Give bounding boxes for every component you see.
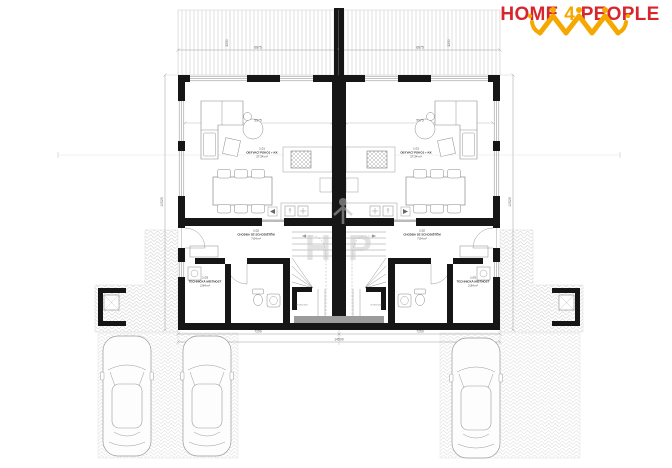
dim-top-right: 6875 [416, 46, 424, 50]
dim-side-right: 10525 [508, 197, 512, 207]
brand-logo: HOME 4 PEOPLE [496, 4, 664, 24]
living-left-area: 27,34 m² [256, 155, 267, 159]
watermark-letter-right: P [348, 227, 372, 268]
dim-living-left: 5975 [254, 119, 262, 123]
dim-terrace-left: 3250 [225, 39, 229, 47]
tech-left-area: 2,94 m² [200, 284, 210, 288]
dim-bottom-left: 7250 [254, 330, 262, 334]
watermark-letter-left: H [305, 227, 331, 268]
dim-bottom-right: 7250 [416, 330, 424, 334]
dim-side-left: 10525 [160, 197, 164, 207]
car-right [450, 338, 503, 458]
living-right-area: 27,34 m² [410, 155, 421, 159]
stair-note-right: 9×184×250 [370, 304, 382, 307]
car-left-1 [101, 336, 154, 456]
dim-top-left: 6875 [254, 46, 262, 50]
hall-right-area: 7,04 m² [417, 237, 427, 241]
stair-note-left: 9×184×250 [296, 304, 308, 307]
dim-bottom-total: 14500 [334, 338, 344, 342]
floor-plan-drawing: H P 1.01 OBÝVACÍ POKOJ + KK 27,34 m² 1.0… [0, 0, 672, 468]
dim-terrace-right: 3250 [447, 39, 451, 47]
dim-living-right: 5975 [416, 119, 424, 123]
crown-icon [496, 4, 664, 37]
car-left-2 [181, 336, 234, 456]
tech-right-area: 2,94 m² [468, 284, 478, 288]
hall-left-area: 7,04 m² [251, 237, 261, 241]
